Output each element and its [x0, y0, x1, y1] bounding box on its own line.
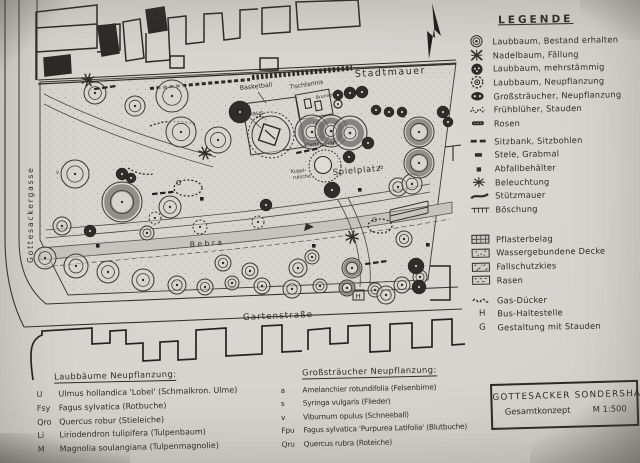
- legend-item-label: Fallschutzkies: [496, 261, 556, 272]
- wassergebundene-decke-icon: [466, 246, 496, 260]
- legend-item-label: Frühblüher, Stauden: [494, 103, 582, 115]
- rasen-icon: [467, 274, 497, 288]
- shrub-list-heading: Großsträucher Neupflanzung:: [302, 364, 437, 379]
- plant-code: Qru: [282, 437, 304, 451]
- label-code-fz: fz: [379, 165, 384, 171]
- plant-code: a: [280, 383, 302, 397]
- plant-code: U: [36, 387, 58, 401]
- sitzbank-icon: [464, 135, 494, 149]
- plant-code: Fpu: [281, 424, 303, 438]
- legend-item-label: Stützmauer: [495, 190, 545, 201]
- plant-name: Quercus rubra (Roteiche): [304, 435, 393, 450]
- label-gartenstrasse: Gartenstraße: [243, 310, 314, 323]
- legend-item-label: Böschung: [495, 204, 537, 215]
- legend-item-label: Laubbaum, Bestand erhalten: [492, 34, 618, 46]
- plant-code: M: [38, 443, 60, 457]
- legend-item-label: Großsträucher, Neupflanzung: [493, 89, 621, 101]
- label-gottesackergasse: Gottesackergasse: [26, 166, 35, 263]
- concept-label: Gesamtkonzept: [505, 405, 571, 417]
- tree-list-heading: Laubbäume Neupflanzung:: [54, 369, 177, 384]
- stauden-symbol: G: [467, 322, 497, 333]
- legend-item-label: Laubbaum, Neupflanzung: [493, 75, 604, 87]
- abfallbehaelter-icon: [465, 162, 495, 176]
- gas-duecker-icon: [467, 293, 497, 307]
- legend-item-label: Abfallbehälter: [495, 162, 556, 173]
- legend-item-label: Bus-Haltestelle: [497, 308, 563, 319]
- plan-photo: H Stadtmauer Basketball Tischtennis Baum…: [0, 0, 640, 463]
- laubbaum-neupflanzung-icon: [463, 76, 493, 90]
- fruehblueher-stauden-icon: [464, 103, 494, 117]
- label-code-v: v: [56, 170, 59, 176]
- label-code-s: s: [264, 207, 267, 213]
- bus-haltestelle-symbol: H: [467, 309, 497, 320]
- legend-item-label: Gestaltung mit Stauden: [497, 321, 601, 333]
- plant-code: v: [281, 410, 303, 424]
- pflasterbelag-icon: [466, 233, 496, 247]
- tree-plant-list: Laubbäume Neupflanzung: UUlmus hollandic…: [36, 367, 239, 457]
- boeschung-icon: [465, 203, 495, 217]
- stuetzmauer-icon: [465, 189, 495, 203]
- shrub-plant-list: Großsträucher Neupflanzung: aAmelanchier…: [280, 364, 468, 451]
- label-code-a: a: [402, 114, 405, 120]
- plant-code: Fsy: [37, 401, 59, 415]
- legend-item-label: Rosen: [494, 118, 520, 128]
- legend-item-label: Wassergebundene Decke: [496, 246, 605, 258]
- legend-item-label: Gas-Dücker: [497, 294, 547, 305]
- nadelbaum-faellung-icon: [463, 49, 493, 63]
- legend: LEGENDE Laubbaum, Bestand erhalten Nadel…: [462, 12, 640, 335]
- legend-item-label: Nadelbaum, Fällung: [493, 49, 579, 60]
- buildings-north: [36, 0, 360, 80]
- legend-heading: LEGENDE: [498, 12, 640, 26]
- grossstraeucher-neupflanzung-icon: [463, 90, 493, 104]
- north-arrow-icon: [427, 3, 441, 59]
- plant-code: s: [281, 397, 303, 411]
- legend-item-label: Sitzbank, Sitzbohlen: [494, 135, 582, 147]
- beleuchtung-icon: [465, 176, 495, 190]
- legend-item-label: Beleuchtung: [495, 176, 550, 187]
- stele-icon: [464, 148, 494, 162]
- legend-item: Böschung: [465, 200, 640, 217]
- rosen-icon: [464, 117, 494, 131]
- laubbaum-mehrstaemmig-icon: [463, 62, 493, 76]
- legend-item-label: Pflasterbelag: [496, 233, 553, 244]
- legend-item-label: Rasen: [497, 275, 524, 285]
- legend-item: Rasen: [467, 271, 640, 288]
- plant-code: Li: [37, 429, 59, 443]
- bus-stop-letter: H: [356, 293, 361, 301]
- legend-item-label: Stele, Grabmal: [494, 149, 559, 160]
- label-stauden-g2: G: [372, 216, 377, 224]
- label-stauden-g: G: [176, 179, 181, 187]
- laubbaum-bestand-icon: [462, 35, 492, 49]
- fallschutzkies-icon: [466, 260, 496, 274]
- title-block: GOTTESACKER SONDERSHAUSEN Gesamtkonzept …: [490, 380, 639, 430]
- plant-code: Qro: [37, 415, 59, 429]
- legend-item-label: Laubbaum, mehrstämmig: [493, 62, 605, 74]
- legend-item: Rosen: [464, 114, 640, 131]
- scale-label: M 1:500: [593, 403, 627, 414]
